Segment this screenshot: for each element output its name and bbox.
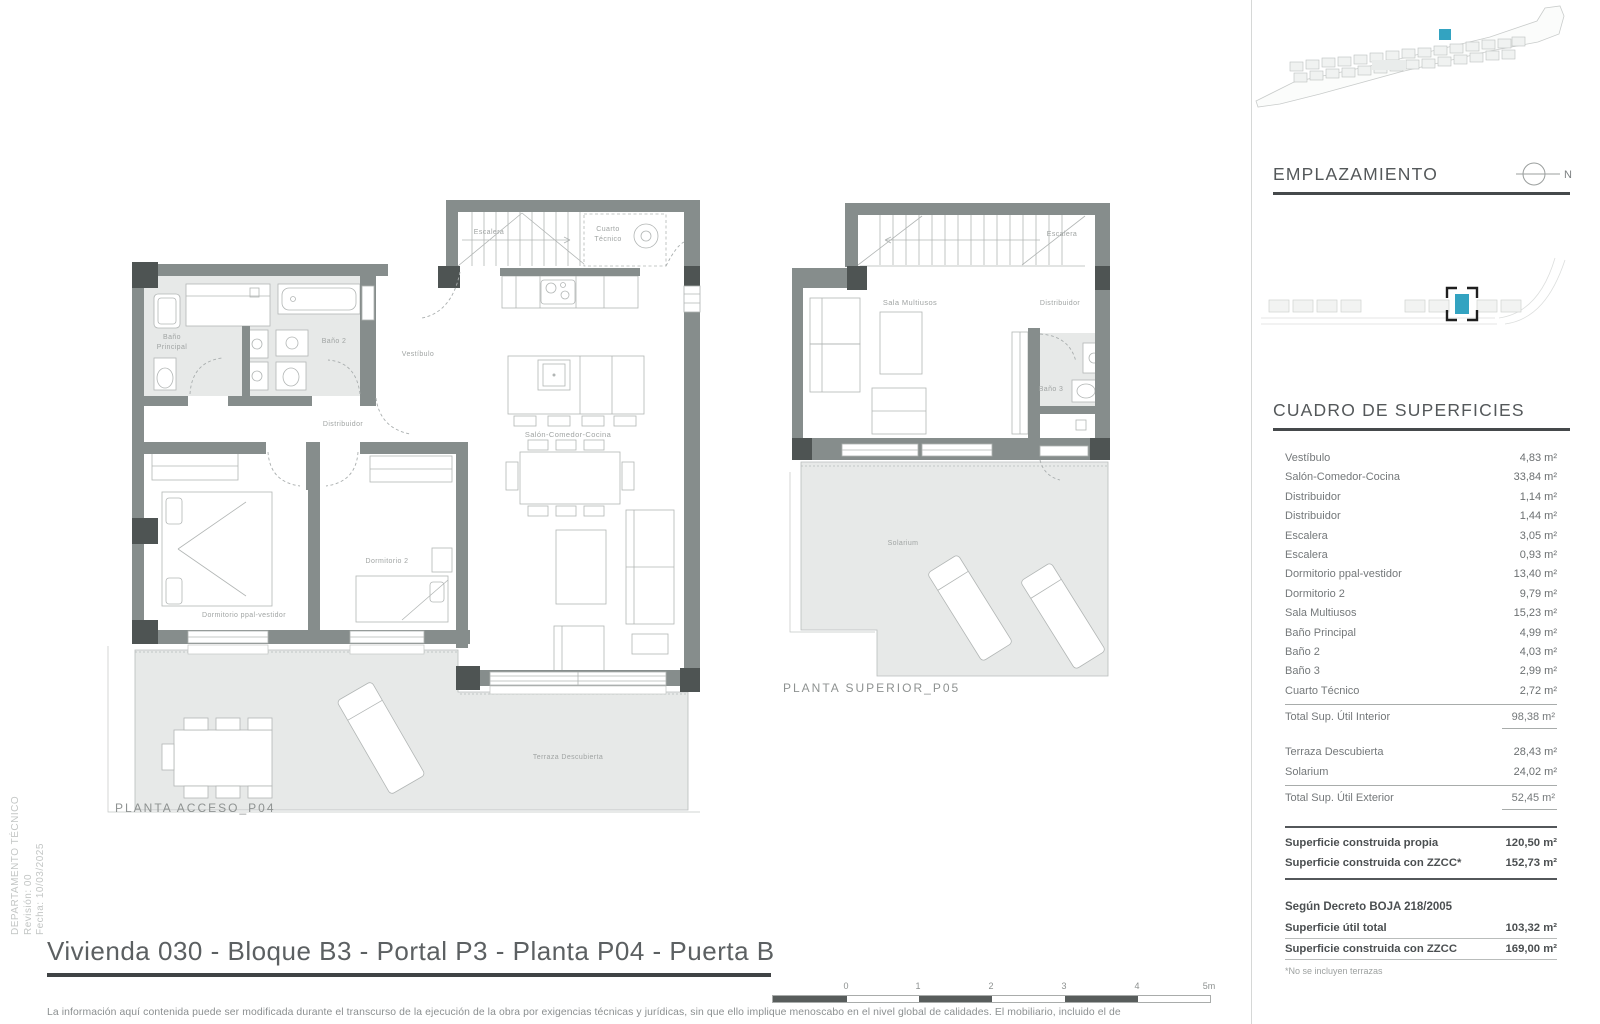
label-bano3: Baño 3 <box>1039 386 1064 393</box>
label-distribuidor-upper: Distribuidor <box>1040 300 1080 307</box>
table-row: Escalera3,05 m² <box>1285 527 1557 546</box>
sala-furniture <box>810 298 1028 434</box>
plan-sheet: DEPARTAMENTO TÉCNICO Revisión: 00 Fecha:… <box>0 0 1600 1024</box>
floor-plan-upper: Escalera Sala Multiusos Distribuidor Bañ… <box>770 190 1122 710</box>
label-distribuidor: Distribuidor <box>323 421 363 428</box>
built-row: Superficie construida propia120,50 m² <box>1285 833 1557 853</box>
label-bano-ppal-1: Baño <box>163 334 181 341</box>
table-row: Distribuidor1,14 m² <box>1285 488 1557 507</box>
label-cuarto-2: Técnico <box>594 236 621 243</box>
highlighted-unit-marker <box>1439 29 1451 40</box>
total-interior-row: Total Sup. Útil Interior98,38 m² <box>1285 704 1557 729</box>
decree-row: Superficie construida con ZZCC169,00 m² <box>1285 939 1557 960</box>
table-row: Vestíbulo4,83 m² <box>1285 449 1557 468</box>
north-arrow-icon: N <box>1512 154 1582 194</box>
strip-units <box>1269 300 1521 312</box>
meta-revision: Revisión: 00 <box>23 796 36 935</box>
scale-bar <box>772 995 1211 1003</box>
label-escalera: Escalera <box>474 229 504 236</box>
highlighted-unit <box>1455 294 1469 314</box>
built-row: Superficie construida con ZZCC*152,73 m² <box>1285 853 1557 873</box>
label-escalera-upper: Escalera <box>1047 231 1077 238</box>
surfaces-table: Vestíbulo4,83 m² Salón-Comedor-Cocina33,… <box>1285 449 1557 976</box>
table-row: Distribuidor1,44 m² <box>1285 507 1557 526</box>
caption-planta-superior: PLANTA SUPERIOR_P05 <box>783 681 960 695</box>
panel-divider <box>1251 0 1252 1024</box>
living-furniture <box>554 510 674 672</box>
table-row: Cuarto Técnico2,72 m² <box>1285 682 1557 701</box>
label-terraza: Terraza Descubierta <box>533 754 603 761</box>
windows-upper <box>842 444 1088 456</box>
label-bano2: Baño 2 <box>322 338 347 345</box>
table-row: Terraza Descubierta28,43 m² <box>1285 743 1557 762</box>
built-surface-block: Superficie construida propia120,50 m² Su… <box>1285 826 1557 880</box>
title-underline <box>47 973 771 977</box>
table-row: Dormitorio ppal-vestidor13,40 m² <box>1285 565 1557 584</box>
bedroom-furniture <box>152 452 452 622</box>
table-row: Baño 24,03 m² <box>1285 643 1557 662</box>
svg-text:N: N <box>1564 169 1572 181</box>
decree-heading: Según Decreto BOJA 218/2005 <box>1285 896 1557 918</box>
table-row: Salón-Comedor-Cocina33,84 m² <box>1285 468 1557 487</box>
table-row: Dormitorio 29,79 m² <box>1285 585 1557 604</box>
label-cuarto-1: Cuarto <box>596 226 619 233</box>
table-row: Escalera0,93 m² <box>1285 546 1557 565</box>
stairs-upper <box>858 215 1085 266</box>
scale-labels: 0 1 2 3 4 5m <box>772 981 1212 993</box>
disclaimer-text: La información aquí contenida puede ser … <box>47 1007 1237 1018</box>
table-row: Solarium24,02 m² <box>1285 763 1557 782</box>
decree-block: Según Decreto BOJA 218/2005 Superficie ú… <box>1285 896 1557 976</box>
label-sala-multiusos: Sala Multiusos <box>883 298 937 307</box>
label-vestibulo: Vestíbulo <box>402 351 434 358</box>
caption-planta-acceso: PLANTA ACCESO_P04 <box>115 801 276 815</box>
total-exterior-row: Total Sup. Útil Exterior52,45 m² <box>1285 785 1557 810</box>
label-salon: Salón-Comedor-Cocina <box>525 430 612 439</box>
surfaces-heading: CUADRO DE SUPERFICIES <box>1273 400 1570 431</box>
label-dorm-ppal: Dormitorio ppal-vestidor <box>202 612 286 619</box>
location-strip-diagram <box>1255 238 1575 333</box>
kitchen-counter <box>502 276 638 308</box>
kitchen-island <box>508 356 644 426</box>
meta-date: Fecha: 10/03/2025 <box>35 796 48 935</box>
sheet-meta: DEPARTAMENTO TÉCNICO Revisión: 00 Fecha:… <box>10 796 48 935</box>
label-bano-ppal-2: Principal <box>157 344 187 351</box>
label-dorm2: Dormitorio 2 <box>366 558 409 565</box>
table-footnote: *No se incluyen terrazas <box>1285 966 1557 976</box>
table-row: Baño 32,99 m² <box>1285 662 1557 681</box>
masterplan-thumbnail <box>1250 4 1572 124</box>
sheet-title: Vivienda 030 - Bloque B3 - Portal P3 - P… <box>47 936 775 967</box>
label-solarium: Solarium <box>888 540 919 547</box>
table-row: Sala Multiusos15,23 m² <box>1285 604 1557 623</box>
meta-department: DEPARTAMENTO TÉCNICO <box>10 796 23 935</box>
dining-table <box>506 440 634 516</box>
decree-row: Superficie útil total103,32 m² <box>1285 918 1557 939</box>
stairs-access <box>458 212 584 266</box>
floor-plan-access: Escalera Cuarto Técnico Vestíbulo Baño P… <box>95 190 720 850</box>
table-row: Baño Principal4,99 m² <box>1285 624 1557 643</box>
